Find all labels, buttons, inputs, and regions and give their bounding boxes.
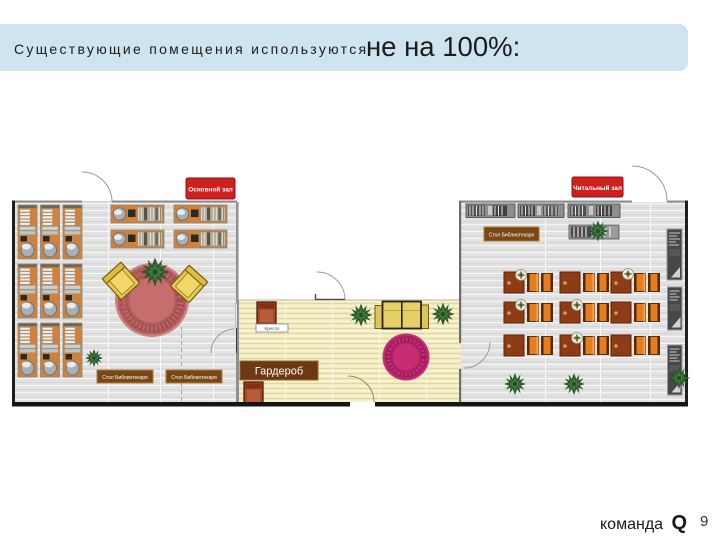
svg-text:Стол Библиотекаря: Стол Библиотекаря <box>489 232 535 238</box>
svg-text:Стол Библиотекаря: Стол Библиотекаря <box>102 375 148 381</box>
svg-text:Кресло: Кресло <box>264 326 280 331</box>
svg-text:Гардероб: Гардероб <box>255 366 303 378</box>
svg-text:Стол Библиотекаря: Стол Библиотекаря <box>171 375 217 381</box>
svg-text:Основной зал: Основной зал <box>188 186 232 194</box>
svg-text:Читальный зал: Читальный зал <box>573 184 622 192</box>
